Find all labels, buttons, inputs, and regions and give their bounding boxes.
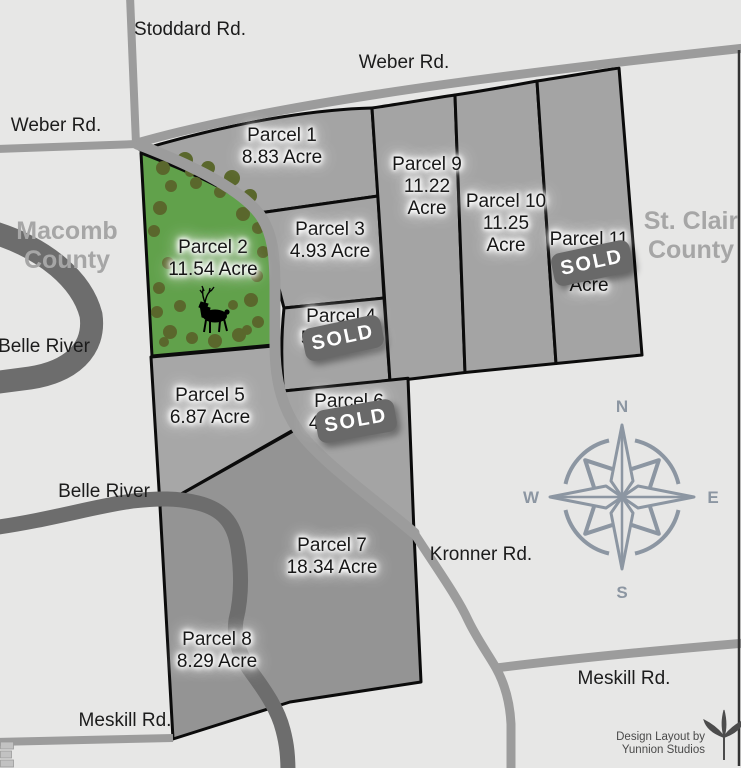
- parcel-1-label: Parcel 1 8.83 Acre: [242, 125, 322, 169]
- meskill-road-right-label: Meskill Rd.: [578, 668, 671, 690]
- parcel-7-label: Parcel 7 18.34 Acre: [287, 535, 378, 579]
- map-edge-structures: [1, 742, 14, 767]
- parcel-9-label: Parcel 9 11.22 Acre: [392, 154, 462, 220]
- parcel-2-label: Parcel 2 11.54 Acre: [168, 237, 257, 281]
- parcel-map: N E S W Stoddard Rd. Weber Rd. Weber Rd.…: [0, 0, 741, 768]
- meskill-road-left-label: Meskill Rd.: [79, 710, 172, 732]
- compass-n-label: N: [616, 397, 628, 416]
- kronner-road-label: Kronner Rd.: [430, 544, 532, 566]
- parcel-map-canvas: N E S W: [0, 0, 741, 768]
- parcel-3-label: Parcel 3 4.93 Acre: [290, 219, 370, 263]
- compass-s-label: S: [616, 583, 627, 602]
- weber-road-left-label: Weber Rd.: [11, 115, 101, 137]
- st-clair-county-label: St. Clair County: [644, 207, 738, 265]
- compass-w-label: W: [523, 488, 540, 507]
- stoddard-road-label: Stoddard Rd.: [134, 19, 246, 41]
- macomb-county-label: Macomb County: [16, 217, 117, 275]
- parcel-5-label: Parcel 5 6.87 Acre: [170, 385, 250, 429]
- meskill-road-left: [0, 738, 173, 742]
- design-credit: Design Layout by Yunnion Studios: [616, 731, 705, 757]
- weber-road-left: [0, 144, 137, 149]
- parcel-10-label: Parcel 10 11.25 Acre: [466, 191, 546, 257]
- parcel-9-shape: [372, 95, 465, 382]
- belle-river-lower-label: Belle River: [58, 481, 150, 503]
- compass-e-label: E: [707, 488, 718, 507]
- belle-river-upper-label: Belle River: [0, 336, 90, 358]
- parcel-8-label: Parcel 8 8.29 Acre: [177, 629, 257, 673]
- weber-road-top-label: Weber Rd.: [359, 52, 449, 74]
